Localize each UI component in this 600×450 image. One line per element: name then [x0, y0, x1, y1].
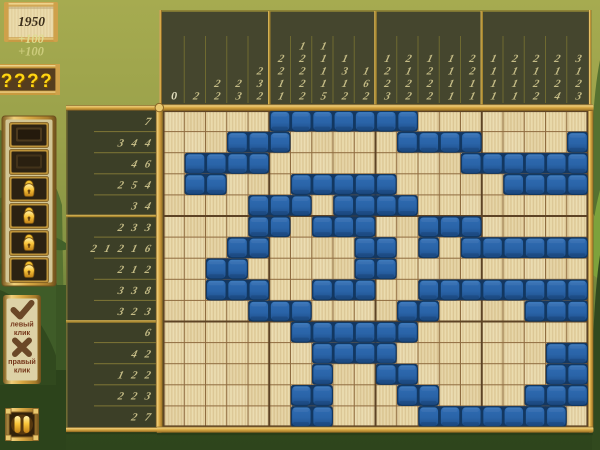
svg-text:0: 0 [171, 89, 177, 103]
svg-text:1950: 1950 [18, 14, 45, 29]
svg-text:+100: +100 [18, 45, 45, 59]
svg-text:клик: клик [14, 328, 31, 337]
svg-text:????: ???? [1, 71, 53, 92]
svg-text:клик: клик [14, 366, 31, 375]
